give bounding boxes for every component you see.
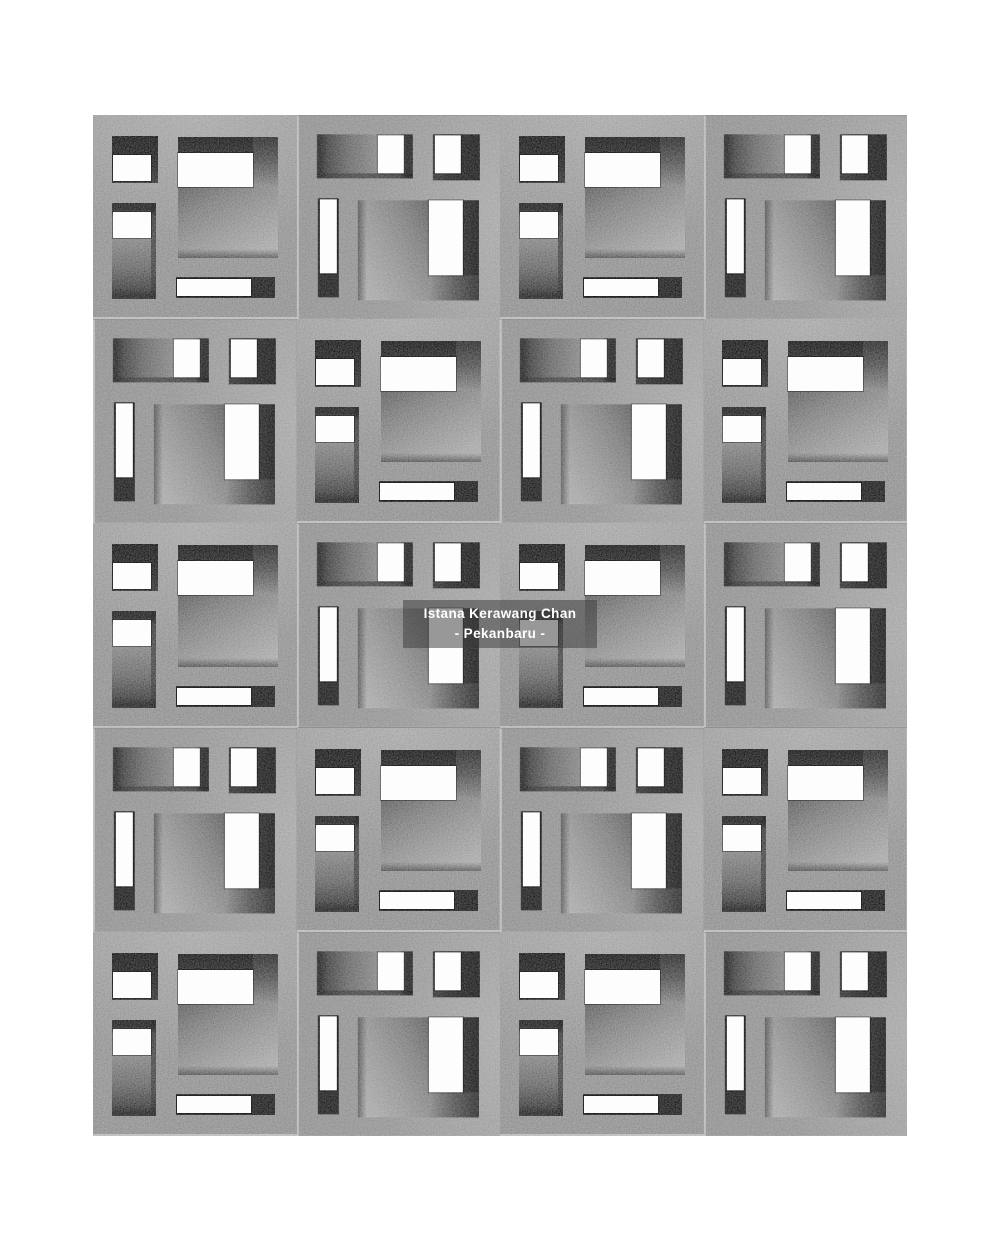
- block-opening-small-top-recess: [839, 951, 886, 997]
- block-opening-bottom-slot: [379, 481, 478, 502]
- light-through-opening: [723, 768, 761, 794]
- block-opening-small-top-recess: [112, 953, 158, 1000]
- light-through-opening: [319, 608, 336, 682]
- breeze-block-tile: [500, 728, 704, 932]
- opening-shade: [660, 954, 685, 1004]
- block-opening-side-slot: [520, 747, 616, 791]
- block-opening-side-slot: [519, 203, 563, 299]
- opening-shade: [764, 1017, 773, 1117]
- block-opening-main-opening: [381, 341, 481, 462]
- light-through-opening: [726, 608, 743, 682]
- light-through-opening: [784, 544, 810, 582]
- block-opening-small-top-recess: [432, 951, 479, 997]
- breeze-block-tile: [297, 319, 501, 523]
- light-through-opening: [723, 825, 761, 851]
- block-opening-side-slot: [316, 543, 412, 587]
- light-through-opening: [632, 813, 666, 888]
- opening-shade: [456, 750, 481, 800]
- opening-shade: [428, 683, 478, 708]
- block-opening-side-slot: [113, 338, 209, 382]
- light-through-opening: [316, 825, 354, 851]
- opening-shade: [761, 407, 766, 503]
- light-through-opening: [584, 688, 658, 705]
- light-through-opening: [638, 339, 664, 377]
- opening-shade: [632, 479, 682, 504]
- block-opening-bottom-slot: [379, 890, 478, 911]
- block-opening-main-opening: [381, 750, 481, 871]
- block-opening-bottom-slot: [583, 686, 682, 707]
- opening-shade: [558, 1020, 563, 1116]
- opening-shade: [585, 1066, 685, 1075]
- block-opening-side-slot: [315, 816, 359, 912]
- opening-shade: [225, 479, 275, 504]
- block-opening-small-top-recess: [722, 749, 768, 796]
- breeze-block-tile: [93, 523, 297, 727]
- light-through-opening: [225, 404, 259, 479]
- light-through-opening: [113, 212, 151, 238]
- breeze-block-tile: [500, 932, 704, 1136]
- light-through-opening: [638, 748, 664, 786]
- light-through-opening: [434, 135, 460, 173]
- light-through-opening: [723, 359, 761, 385]
- caption-subtitle: - Pekanbaru -: [455, 624, 546, 644]
- block-opening-side-slot: [723, 951, 819, 995]
- opening-shade: [316, 990, 412, 995]
- block-opening-bottom-slot: [583, 1094, 682, 1115]
- block-photo: [93, 320, 297, 524]
- block-photo: [704, 524, 908, 728]
- light-through-opening: [178, 561, 253, 595]
- block-opening-main-opening: [561, 404, 682, 504]
- block-opening-bottom-slot: [786, 890, 885, 911]
- breeze-block-tile: [704, 319, 908, 523]
- light-through-opening: [316, 416, 354, 442]
- opening-shade: [558, 203, 563, 299]
- block-photo: [500, 115, 704, 319]
- opening-shade: [357, 200, 366, 300]
- opening-shade: [253, 137, 278, 187]
- block-opening-bottom-slot: [583, 277, 682, 298]
- opening-shade: [788, 453, 888, 462]
- light-through-opening: [835, 200, 869, 275]
- block-opening-main-opening: [764, 200, 885, 300]
- opening-shade: [178, 249, 278, 258]
- light-through-opening: [632, 404, 666, 479]
- light-through-opening: [116, 812, 133, 886]
- light-through-opening: [428, 200, 462, 275]
- block-opening-bottom-slot: [317, 607, 338, 706]
- light-through-opening: [177, 1096, 251, 1113]
- light-through-opening: [113, 1029, 151, 1055]
- opening-shade: [561, 813, 570, 913]
- opening-shade: [357, 609, 366, 709]
- block-photo: [297, 932, 501, 1136]
- block-opening-side-slot: [723, 134, 819, 178]
- opening-shade: [357, 1017, 366, 1117]
- light-through-opening: [523, 812, 540, 886]
- block-opening-main-opening: [585, 954, 685, 1075]
- opening-shade: [151, 1020, 156, 1116]
- light-through-opening: [787, 483, 861, 500]
- block-photo: [297, 115, 501, 319]
- light-through-opening: [380, 483, 454, 500]
- light-through-opening: [174, 339, 200, 377]
- opening-shade: [456, 341, 481, 391]
- block-opening-bottom-slot: [724, 607, 745, 706]
- opening-shade: [632, 888, 682, 913]
- block-opening-bottom-slot: [724, 1015, 745, 1114]
- block-opening-main-opening: [154, 404, 275, 504]
- light-through-opening: [428, 1017, 462, 1092]
- opening-shade: [428, 275, 478, 300]
- light-through-opening: [841, 135, 867, 173]
- opening-shade: [520, 377, 616, 382]
- light-through-opening: [788, 766, 863, 800]
- light-through-opening: [523, 403, 540, 477]
- breeze-block-tile: [704, 115, 908, 319]
- block-opening-small-top-recess: [432, 543, 479, 589]
- opening-shade: [225, 888, 275, 913]
- block-opening-main-opening: [585, 545, 685, 666]
- opening-shade: [253, 545, 278, 595]
- opening-shade: [113, 377, 209, 382]
- light-through-opening: [584, 279, 658, 296]
- block-photo: [93, 115, 297, 319]
- light-through-opening: [585, 970, 660, 1004]
- block-opening-small-top-recess: [519, 136, 565, 183]
- block-opening-small-top-recess: [229, 338, 276, 384]
- block-opening-side-slot: [315, 407, 359, 503]
- block-opening-main-opening: [154, 813, 275, 913]
- breeze-block-tile: [500, 115, 704, 319]
- block-photo: [297, 728, 501, 932]
- block-photo: [500, 932, 704, 1136]
- block-opening-small-top-recess: [839, 543, 886, 589]
- light-through-opening: [520, 972, 558, 998]
- light-through-opening: [113, 620, 151, 646]
- block-opening-side-slot: [316, 951, 412, 995]
- light-through-opening: [584, 1096, 658, 1113]
- light-through-opening: [316, 768, 354, 794]
- block-opening-main-opening: [178, 137, 278, 258]
- opening-shade: [585, 249, 685, 258]
- block-opening-bottom-slot: [521, 402, 542, 501]
- block-photo: [93, 523, 297, 727]
- light-through-opening: [841, 952, 867, 990]
- opening-shade: [154, 813, 163, 913]
- breeze-block-tile: [500, 319, 704, 523]
- opening-shade: [863, 750, 888, 800]
- light-through-opening: [178, 153, 253, 187]
- light-through-opening: [231, 748, 257, 786]
- block-opening-side-slot: [723, 543, 819, 587]
- block-photo: [704, 728, 908, 932]
- light-through-opening: [520, 212, 558, 238]
- light-through-opening: [381, 766, 456, 800]
- breeze-block-tile: [93, 115, 297, 319]
- light-through-opening: [835, 1017, 869, 1092]
- light-through-opening: [585, 153, 660, 187]
- opening-shade: [561, 404, 570, 504]
- block-photo: [297, 319, 501, 523]
- block-opening-small-top-recess: [229, 747, 276, 793]
- breeze-block-tile: [704, 728, 908, 932]
- block-opening-main-opening: [788, 750, 888, 871]
- breeze-block-tile: [297, 932, 501, 1136]
- light-through-opening: [177, 688, 251, 705]
- opening-shade: [178, 658, 278, 667]
- block-opening-bottom-slot: [176, 686, 275, 707]
- light-through-opening: [787, 892, 861, 909]
- block-photo: [500, 320, 704, 524]
- block-opening-small-top-recess: [432, 134, 479, 180]
- light-through-opening: [726, 199, 743, 273]
- opening-shade: [723, 173, 819, 178]
- block-opening-side-slot: [722, 816, 766, 912]
- block-opening-bottom-slot: [786, 481, 885, 502]
- breeze-block-tile: [297, 728, 501, 932]
- light-through-opening: [381, 357, 456, 391]
- light-through-opening: [177, 279, 251, 296]
- block-opening-side-slot: [113, 747, 209, 791]
- block-opening-main-opening: [764, 609, 885, 709]
- light-through-opening: [788, 357, 863, 391]
- light-through-opening: [377, 952, 403, 990]
- light-through-opening: [520, 1029, 558, 1055]
- block-opening-bottom-slot: [114, 811, 135, 910]
- light-through-opening: [377, 544, 403, 582]
- block-opening-main-opening: [788, 341, 888, 462]
- opening-shade: [835, 683, 885, 708]
- block-opening-main-opening: [357, 200, 478, 300]
- block-opening-small-top-recess: [315, 340, 361, 387]
- light-through-opening: [116, 403, 133, 477]
- breeze-block-tile: [93, 728, 297, 932]
- block-opening-small-top-recess: [636, 747, 683, 793]
- opening-shade: [835, 275, 885, 300]
- light-through-opening: [723, 416, 761, 442]
- block-opening-main-opening: [585, 137, 685, 258]
- caption-title: Istana Kerawang Chan: [424, 604, 577, 624]
- photo-page: Istana Kerawang Chan - Pekanbaru -: [0, 0, 1001, 1251]
- light-through-opening: [174, 748, 200, 786]
- light-through-opening: [231, 339, 257, 377]
- light-through-opening: [585, 561, 660, 595]
- opening-shade: [381, 862, 481, 871]
- block-photo: [704, 319, 908, 523]
- block-opening-side-slot: [112, 611, 156, 707]
- block-opening-side-slot: [519, 1020, 563, 1116]
- opening-shade: [764, 200, 773, 300]
- breeze-block-tile: [704, 932, 908, 1136]
- opening-shade: [660, 137, 685, 187]
- opening-shade: [253, 954, 278, 1004]
- block-photo: [93, 932, 297, 1136]
- light-through-opening: [377, 135, 403, 173]
- block-opening-side-slot: [112, 1020, 156, 1116]
- block-photo: [704, 115, 908, 319]
- opening-shade: [316, 582, 412, 587]
- light-through-opening: [784, 952, 810, 990]
- block-opening-side-slot: [722, 407, 766, 503]
- light-through-opening: [319, 199, 336, 273]
- opening-shade: [354, 816, 359, 912]
- block-opening-small-top-recess: [519, 953, 565, 1000]
- breeze-block-tile: [297, 115, 501, 319]
- block-opening-bottom-slot: [317, 198, 338, 297]
- block-opening-bottom-slot: [317, 1015, 338, 1114]
- block-opening-bottom-slot: [521, 811, 542, 910]
- light-through-opening: [316, 359, 354, 385]
- opening-shade: [151, 611, 156, 707]
- block-opening-small-top-recess: [112, 136, 158, 183]
- block-opening-side-slot: [112, 203, 156, 299]
- light-through-opening: [581, 748, 607, 786]
- block-opening-bottom-slot: [176, 1094, 275, 1115]
- block-opening-main-opening: [764, 1017, 885, 1117]
- block-opening-small-top-recess: [519, 544, 565, 591]
- light-through-opening: [113, 563, 151, 589]
- breeze-block-tile: [93, 932, 297, 1136]
- block-opening-small-top-recess: [112, 544, 158, 591]
- block-opening-main-opening: [357, 1017, 478, 1117]
- opening-shade: [381, 453, 481, 462]
- opening-shade: [723, 990, 819, 995]
- opening-shade: [788, 862, 888, 871]
- block-opening-main-opening: [561, 813, 682, 913]
- breeze-block-tile: [93, 319, 297, 523]
- light-through-opening: [520, 563, 558, 589]
- light-through-opening: [726, 1016, 743, 1090]
- block-photo: [93, 728, 297, 932]
- opening-shade: [354, 407, 359, 503]
- block-opening-small-top-recess: [722, 340, 768, 387]
- opening-shade: [660, 545, 685, 595]
- block-opening-main-opening: [178, 545, 278, 666]
- light-through-opening: [113, 155, 151, 181]
- light-through-opening: [434, 544, 460, 582]
- block-opening-side-slot: [520, 338, 616, 382]
- block-opening-side-slot: [316, 134, 412, 178]
- opening-shade: [585, 658, 685, 667]
- opening-shade: [178, 1066, 278, 1075]
- light-through-opening: [835, 609, 869, 684]
- light-through-opening: [319, 1016, 336, 1090]
- light-through-opening: [784, 135, 810, 173]
- light-through-opening: [841, 544, 867, 582]
- block-opening-small-top-recess: [315, 749, 361, 796]
- block-opening-small-top-recess: [839, 134, 886, 180]
- opening-shade: [863, 341, 888, 391]
- opening-shade: [151, 203, 156, 299]
- light-through-opening: [434, 952, 460, 990]
- block-opening-small-top-recess: [636, 338, 683, 384]
- light-through-opening: [225, 813, 259, 888]
- opening-shade: [316, 173, 412, 178]
- light-through-opening: [380, 892, 454, 909]
- breeze-block-tile: [704, 523, 908, 727]
- opening-shade: [520, 786, 616, 791]
- block-photo: [500, 728, 704, 932]
- block-photo: [704, 932, 908, 1136]
- opening-shade: [723, 582, 819, 587]
- caption-overlay: Istana Kerawang Chan - Pekanbaru -: [403, 600, 597, 648]
- block-opening-bottom-slot: [176, 277, 275, 298]
- opening-shade: [113, 786, 209, 791]
- opening-shade: [154, 404, 163, 504]
- light-through-opening: [113, 972, 151, 998]
- opening-shade: [761, 816, 766, 912]
- opening-shade: [764, 609, 773, 709]
- light-through-opening: [581, 339, 607, 377]
- block-opening-bottom-slot: [724, 198, 745, 297]
- block-opening-bottom-slot: [114, 402, 135, 501]
- light-through-opening: [520, 155, 558, 181]
- light-through-opening: [178, 970, 253, 1004]
- opening-shade: [835, 1092, 885, 1117]
- block-opening-main-opening: [178, 954, 278, 1075]
- opening-shade: [428, 1092, 478, 1117]
